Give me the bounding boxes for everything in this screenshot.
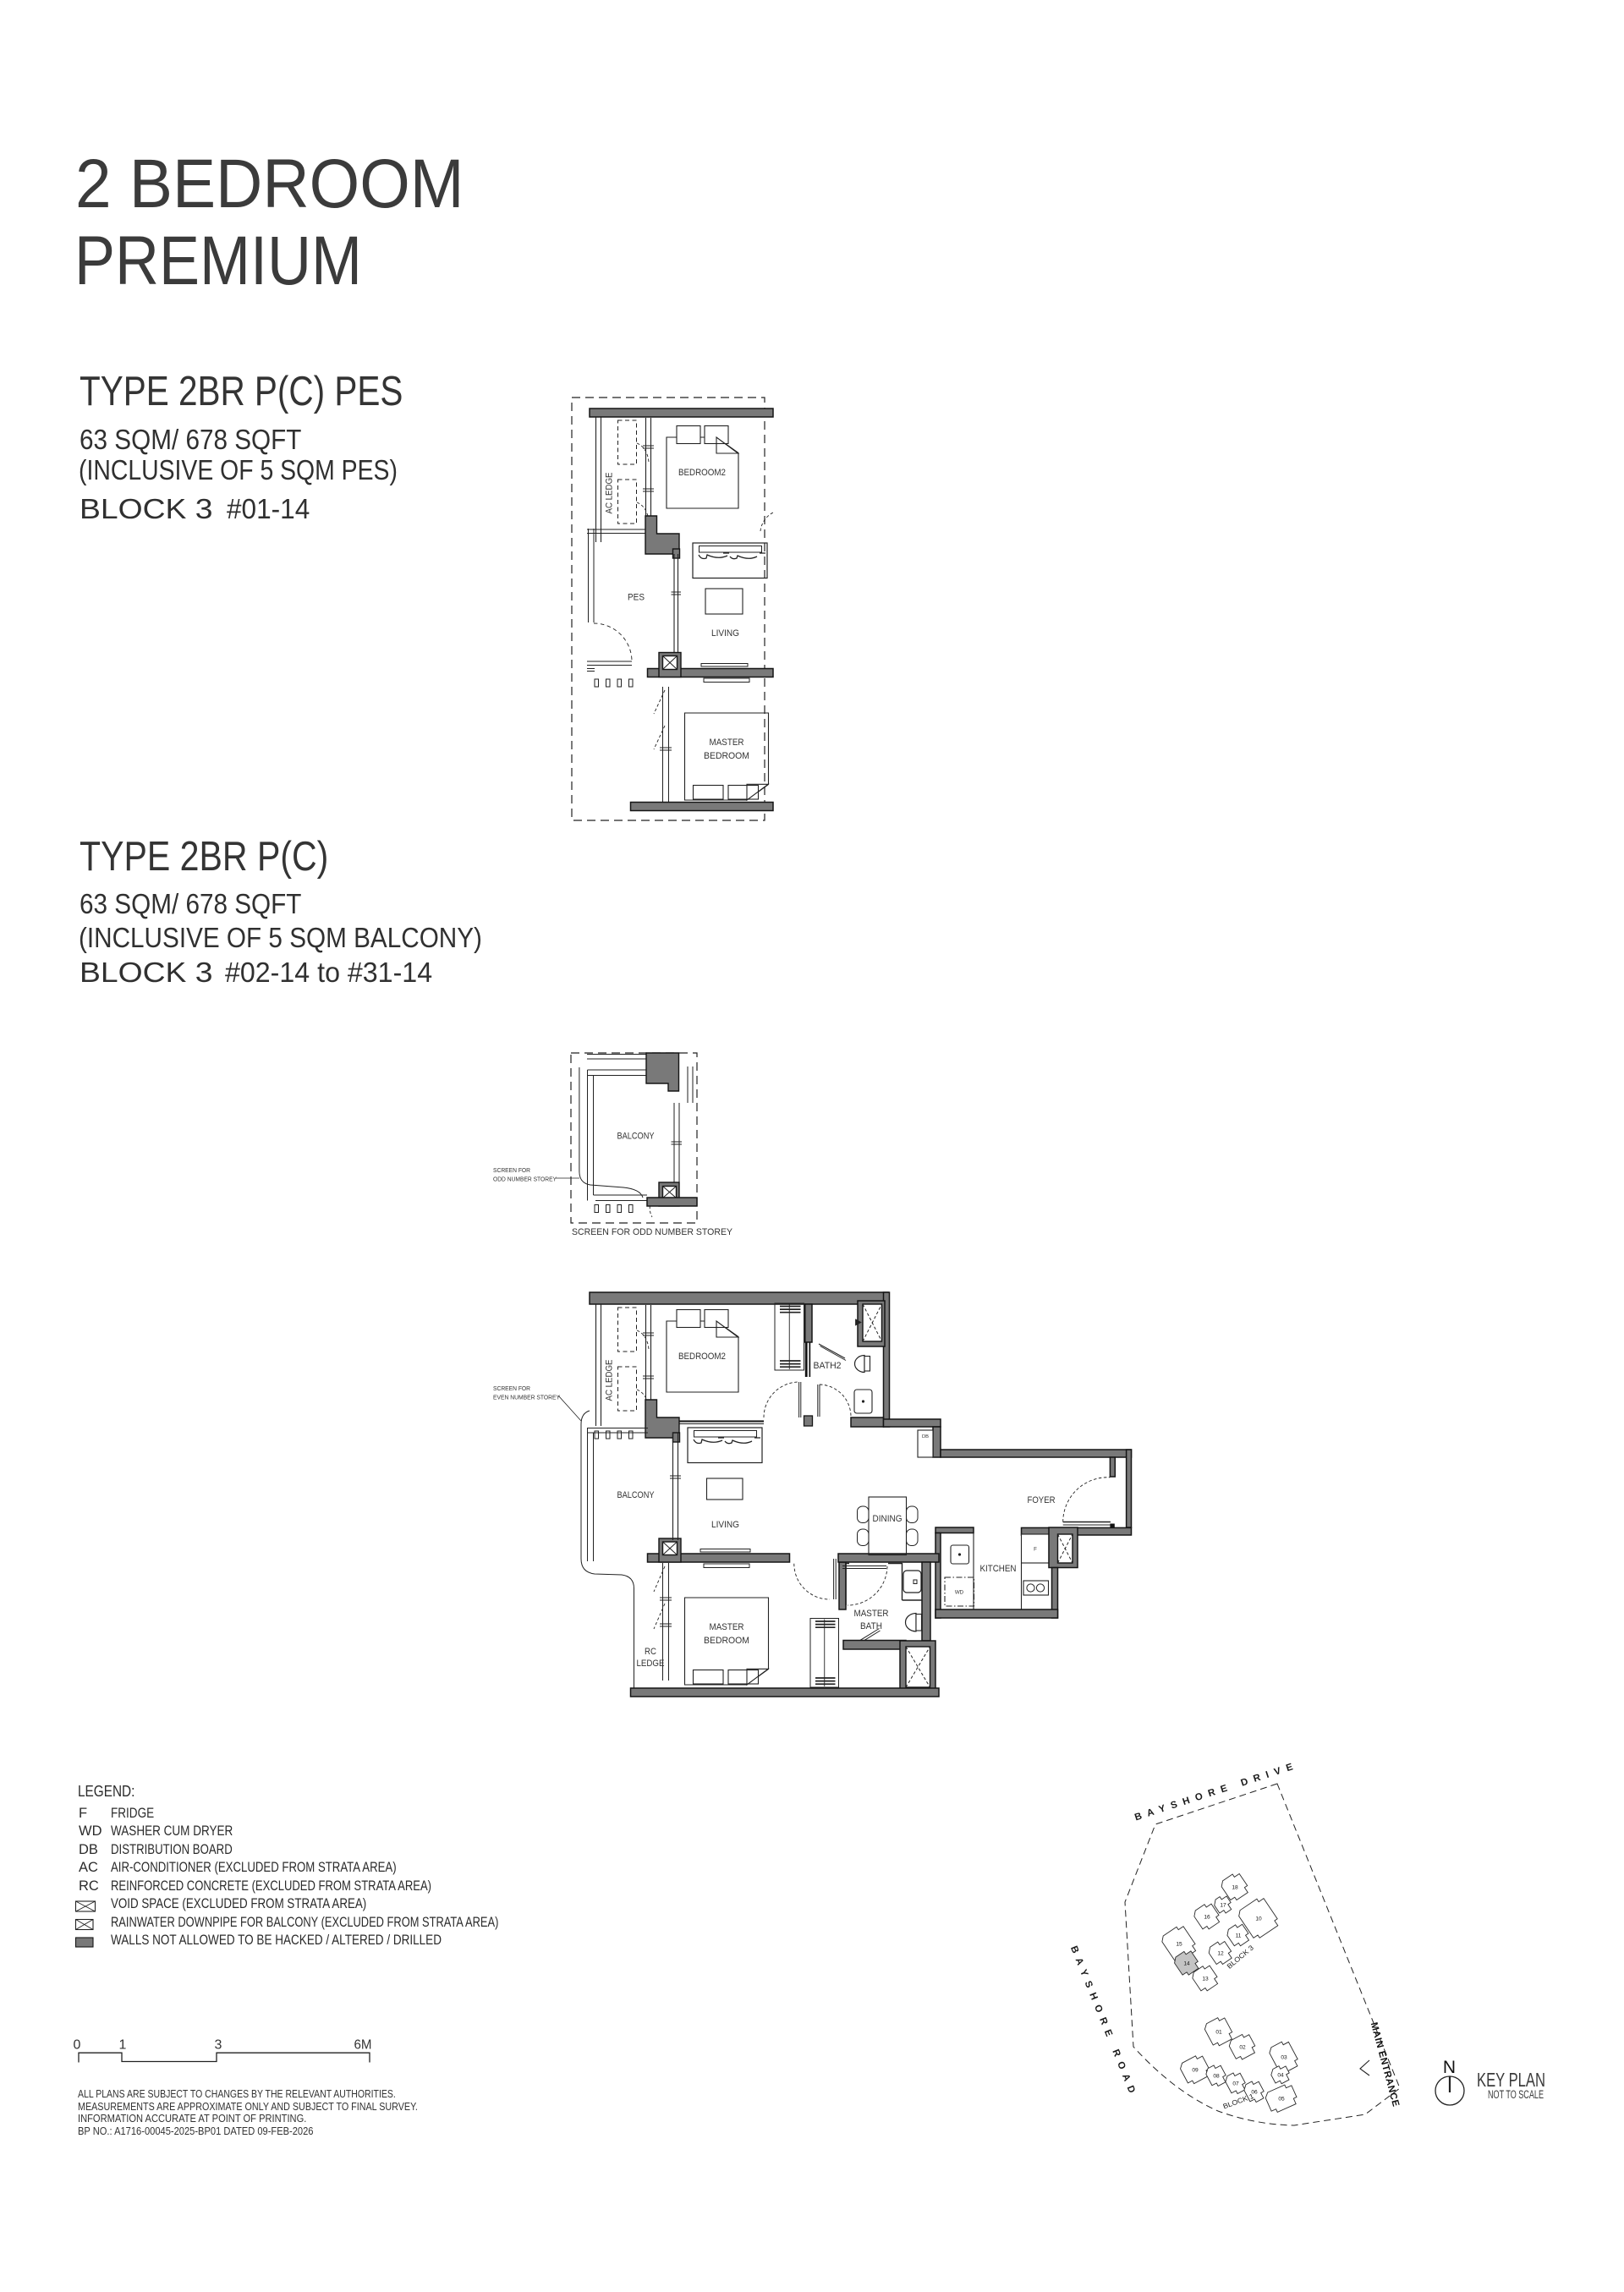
- svg-text:RC: RC: [645, 1647, 656, 1657]
- svg-text:SCREEN FOR: SCREEN FOR: [493, 1166, 530, 1174]
- svg-text:F: F: [1034, 1547, 1037, 1553]
- svg-text:BEDROOM: BEDROOM: [704, 1636, 749, 1646]
- svg-text:01: 01: [1215, 2030, 1222, 2036]
- svg-text:EVEN NUMBER STOREY: EVEN NUMBER STOREY: [493, 1394, 560, 1401]
- svg-text:MASTER: MASTER: [854, 1609, 889, 1619]
- svg-text:11: 11: [1236, 1933, 1242, 1939]
- svg-text:LIVING: LIVING: [711, 1520, 739, 1530]
- svg-text:LIVING: LIVING: [711, 628, 739, 639]
- svg-text:KITCHEN: KITCHEN: [980, 1564, 1017, 1574]
- svg-text:6M: 6M: [354, 2038, 372, 2053]
- svg-text:BALCONY: BALCONY: [617, 1132, 655, 1142]
- svg-text:08: 08: [1213, 2074, 1220, 2080]
- svg-text:3: 3: [215, 2038, 222, 2053]
- svg-text:ODD NUMBER STOREY: ODD NUMBER STOREY: [493, 1176, 557, 1183]
- svg-text:BATH: BATH: [860, 1621, 882, 1631]
- svg-text:BATH2: BATH2: [814, 1361, 842, 1371]
- svg-text:B A Y S H O R E R O A D: B A Y S H O R E R O A D: [1068, 1944, 1138, 2096]
- svg-text:10: 10: [1255, 1916, 1262, 1922]
- svg-text:07: 07: [1232, 2081, 1239, 2087]
- svg-text:12: 12: [1217, 1951, 1224, 1957]
- svg-text:SCREEN FOR: SCREEN FOR: [493, 1385, 530, 1392]
- svg-text:09: 09: [1192, 2068, 1199, 2074]
- svg-text:13: 13: [1202, 1977, 1209, 1982]
- svg-text:BALCONY: BALCONY: [617, 1490, 655, 1500]
- svg-text:DINING: DINING: [873, 1514, 903, 1524]
- svg-text:BEDROOM2: BEDROOM2: [678, 1352, 726, 1362]
- svg-text:1: 1: [119, 2038, 127, 2053]
- svg-text:04: 04: [1277, 2073, 1284, 2079]
- svg-text:BEDROOM: BEDROOM: [704, 751, 749, 761]
- svg-text:AC LEDGE: AC LEDGE: [605, 1360, 615, 1401]
- svg-text:AC LEDGE: AC LEDGE: [605, 473, 615, 514]
- svg-text:14: 14: [1183, 1961, 1190, 1967]
- svg-text:16: 16: [1204, 1915, 1210, 1921]
- svg-text:0: 0: [74, 2038, 81, 2053]
- svg-text:15: 15: [1176, 1942, 1182, 1948]
- svg-text:02: 02: [1239, 2045, 1246, 2051]
- svg-text:MAIN ENTRANCE: MAIN ENTRANCE: [1369, 2021, 1401, 2108]
- svg-text:MASTER: MASTER: [710, 737, 744, 748]
- svg-text:BEDROOM2: BEDROOM2: [678, 468, 726, 478]
- svg-text:N: N: [1443, 2058, 1456, 2077]
- svg-text:SCREEN FOR ODD NUMBER STOREY: SCREEN FOR ODD NUMBER STOREY: [572, 1227, 732, 1237]
- svg-text:LEDGE: LEDGE: [637, 1659, 665, 1669]
- svg-text:17: 17: [1220, 1903, 1226, 1909]
- svg-text:03: 03: [1281, 2055, 1287, 2061]
- svg-text:05: 05: [1278, 2097, 1285, 2103]
- svg-text:FOYER: FOYER: [1028, 1495, 1056, 1505]
- svg-text:NOT TO SCALE: NOT TO SCALE: [1488, 2088, 1544, 2101]
- svg-text:PES: PES: [628, 593, 645, 603]
- svg-text:18: 18: [1232, 1885, 1238, 1891]
- svg-text:WD: WD: [955, 1590, 964, 1596]
- svg-text:MASTER: MASTER: [710, 1622, 744, 1632]
- svg-text:B A Y S H O R E D R I V E: B A Y S H O R E D R I V E: [1133, 1762, 1296, 1823]
- svg-text:DB: DB: [922, 1434, 929, 1439]
